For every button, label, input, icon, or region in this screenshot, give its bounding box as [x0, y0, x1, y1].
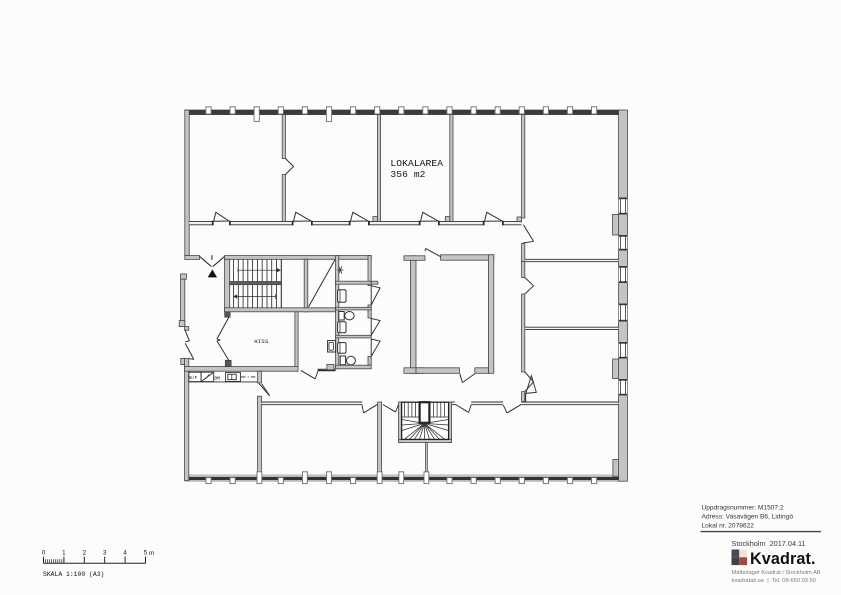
svg-text:SKALA 1:100 (A3): SKALA 1:100 (A3)	[43, 571, 104, 578]
svg-text:kvadratab.se | Tel. 08-650 0: kvadratab.se | Tel. 08-650 03 50	[732, 578, 816, 584]
svg-text:Adress: Vasavägen B6, Lidingö: Adress: Vasavägen B6, Lidingö	[702, 514, 794, 521]
svg-text:Stockholm 2017.04.11: Stockholm 2017.04.11	[732, 539, 806, 548]
svg-text:HISS: HISS	[254, 338, 269, 345]
svg-text:DM: DM	[214, 375, 220, 381]
svg-text:5: 5	[144, 550, 148, 557]
svg-text:Lokal nr. 2078622: Lokal nr. 2078622	[702, 523, 755, 530]
svg-text:356 m2: 356 m2	[390, 169, 425, 180]
svg-text:0: 0	[42, 550, 46, 557]
svg-text:1: 1	[62, 550, 66, 557]
svg-text:2: 2	[83, 550, 87, 557]
svg-text:Kvadrat.: Kvadrat.	[750, 550, 816, 568]
svg-text:m: m	[149, 550, 154, 557]
svg-text:Uppdragsnummer: M1507:2: Uppdragsnummer: M1507:2	[702, 505, 784, 512]
svg-text:Mätbolaget Kvadrat i Stockholm: Mätbolaget Kvadrat i Stockholm AB	[732, 570, 821, 576]
svg-text:LOKALAREA: LOKALAREA	[390, 158, 443, 169]
svg-text:K/F: K/F	[189, 376, 197, 381]
svg-text:3: 3	[103, 550, 107, 557]
svg-text:4: 4	[123, 550, 127, 557]
